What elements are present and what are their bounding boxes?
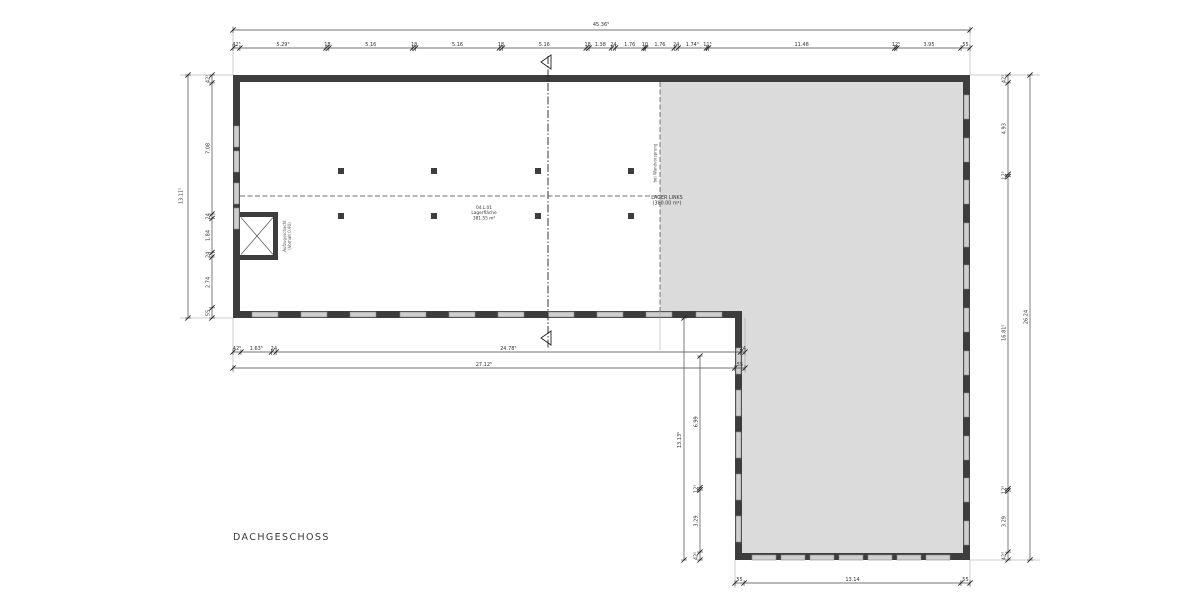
boundary-note-label: bei Wandvorsprung (653, 143, 658, 182)
floorplan-drawing: 42⁵5.29⁵185.16185.16185.16181.38241.7610… (0, 0, 1200, 600)
window-opening (781, 555, 805, 560)
dim-chain-left: 42⁵7.08241.84242.7455 (206, 72, 216, 320)
column-marker (628, 168, 634, 174)
elevator-shaft (240, 212, 278, 260)
dim-total-left-label: 13.11⁵ (179, 188, 185, 204)
window-opening (400, 312, 426, 317)
window-opening (234, 151, 239, 172)
dim-chain-top: 42⁵5.29⁵185.16185.16185.16181.38241.7610… (230, 42, 972, 51)
window-opening (964, 180, 969, 204)
window-opening (646, 312, 672, 317)
column-marker (431, 168, 437, 174)
window-opening (736, 474, 741, 500)
dim-total-right-label: 26.24 (1024, 310, 1030, 324)
dim-label: 5.16 (539, 42, 550, 48)
window-opening (597, 312, 623, 317)
dim-label: 3.29 (694, 515, 700, 526)
dim-label: 55 (737, 362, 743, 368)
dim-label: 3.95 (923, 42, 934, 48)
window-opening (964, 521, 969, 545)
dim-label: 6.99 (694, 416, 700, 427)
shaft-wall (240, 212, 278, 217)
dim-label: 55 (962, 42, 968, 48)
dim-label: 55 (736, 577, 742, 583)
dim-chain-left-total (185, 72, 191, 320)
column-marker (338, 213, 344, 219)
dim-chain-inner-a: 6.9912⁵3.2942⁵ (694, 353, 704, 562)
wall-segment (233, 75, 970, 82)
window-opening (449, 312, 475, 317)
column-marker (535, 213, 541, 219)
window-opening (350, 312, 376, 317)
window-opening (964, 223, 969, 247)
dim-label: 11.48 (794, 42, 808, 48)
window-opening (234, 126, 239, 147)
shaded-area-rect (660, 82, 963, 311)
window-opening (736, 390, 741, 416)
dim-label: 1.76 (654, 42, 665, 48)
window-opening (868, 555, 892, 560)
window-opening (301, 312, 327, 317)
column-marker (535, 168, 541, 174)
dim-label: 16.81⁵ (1002, 325, 1008, 341)
window-opening (736, 432, 741, 458)
dim-label: 55 (962, 577, 968, 583)
dim-chain-bottom: 5513.1455 (732, 577, 972, 586)
room-number-label: 04.L.01 (476, 205, 492, 211)
window-opening (736, 516, 741, 542)
window-opening (839, 555, 863, 560)
dim-label: 12⁵ (892, 42, 900, 48)
dim-label: 42⁵ (233, 346, 241, 352)
dim-chain-right: 42⁵4.9312⁵16.81⁵12⁵3.2942⁵ (1002, 72, 1012, 562)
dim-label: 3.29 (1002, 516, 1008, 527)
window-opening (926, 555, 950, 560)
dim-label: 2.74 (206, 277, 212, 288)
room-name-label: Lagerfläche (471, 210, 497, 216)
window-opening (964, 265, 969, 289)
dim-label: 42⁵ (1002, 75, 1008, 83)
section-marker-bottom-icon (541, 331, 551, 345)
dim-chain-bottom-left-row2: 27.12⁵55 (230, 362, 747, 371)
dim-label: 42⁵ (694, 552, 700, 560)
window-opening (252, 312, 278, 317)
dim-chain-bottom-left-row1: 42⁵1.63⁵2424.78⁵24 (230, 346, 747, 355)
window-opening (548, 312, 574, 317)
dim-label: 1.63⁵ (250, 346, 263, 352)
dim-label: 7.08 (206, 143, 212, 154)
dim-label: 42⁵ (1002, 552, 1008, 560)
window-opening (964, 308, 969, 332)
dim-label: 13.14 (845, 577, 859, 583)
window-opening (964, 393, 969, 417)
lager-links-area-label: (380.00 m²) (653, 201, 682, 207)
column-marker (338, 168, 344, 174)
shaft-wall (273, 217, 278, 255)
window-opening (964, 95, 969, 119)
window-opening (234, 208, 239, 229)
dim-label: 27.12⁵ (476, 362, 492, 368)
window-opening (810, 555, 834, 560)
shaft-wall (240, 255, 278, 260)
floorplan-canvas: 42⁵5.29⁵185.16185.16185.16181.38241.7610… (0, 0, 1200, 600)
room-area-label: 381.55 m² (473, 215, 496, 221)
dim-label: 1.84 (206, 230, 212, 241)
dim-label: 1.38 (595, 42, 606, 48)
section-marker-top-icon (541, 55, 551, 69)
dim-label: 5.29⁵ (276, 42, 289, 48)
shaded-area-rect (742, 311, 963, 553)
dim-label: 4.93 (1002, 123, 1008, 134)
dim-label: 42⁵ (232, 42, 240, 48)
floor-title: DACHGESCHOSS (233, 532, 330, 543)
column-marker (431, 213, 437, 219)
shaft-label-line2: (Vorhalt 0.90) (287, 222, 292, 250)
window-opening (234, 183, 239, 204)
window-opening (964, 478, 969, 502)
column-marker (628, 213, 634, 219)
window-opening (964, 436, 969, 460)
window-opening (964, 138, 969, 162)
window-opening (897, 555, 921, 560)
dim-label: 1.74⁵ (686, 42, 699, 48)
dim-label: 24.78⁵ (500, 346, 516, 352)
dim-label: 55 (206, 310, 212, 316)
dim-label: 1.76 (624, 42, 635, 48)
dim-label: 5.16 (452, 42, 463, 48)
window-opening (752, 555, 776, 560)
window-opening (696, 312, 722, 317)
dim-label: 11⁵ (703, 42, 711, 48)
lager-links-label: LAGER LINKS (651, 195, 682, 201)
dashed-reference-lines (240, 55, 660, 348)
dim-total-inner-label: 13.13⁵ (677, 432, 683, 448)
dim-label: 5.16 (365, 42, 376, 48)
window-opening (498, 312, 524, 317)
dim-total-top-label: 45.36⁵ (593, 22, 609, 28)
window-opening (964, 351, 969, 375)
dim-label: 42⁵ (206, 75, 212, 83)
